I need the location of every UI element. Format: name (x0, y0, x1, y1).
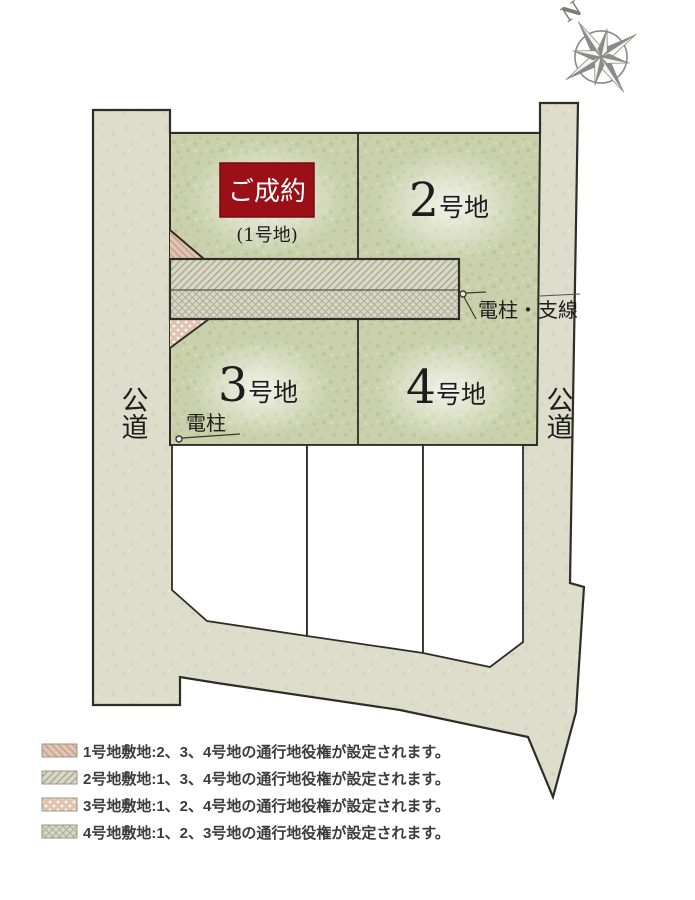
legend-label-1: 1号地敷地:2、3、4号地の通行地役権が設定されます。 (83, 743, 450, 761)
white-lot-left (172, 445, 307, 636)
legend-item-3: 3号地敷地:1、2、4号地の通行地役権が設定されます。 (42, 797, 450, 815)
easement-strip-lower (170, 290, 459, 319)
lot3-suffix: 号地 (248, 378, 298, 407)
left-road-label: 公道 (117, 386, 148, 440)
legend-item-1: 1号地敷地:2、3、4号地の通行地役権が設定されます。 (42, 743, 450, 761)
lot4-suffix: 号地 (436, 380, 486, 409)
pole-label: 電柱 (186, 411, 226, 435)
lot4-number: 4 (406, 360, 436, 415)
legend-label-4: 4号地敷地:1、2、3号地の通行地役権が設定されます。 (83, 824, 450, 842)
lot1-name: (1号地) (236, 225, 298, 246)
lot2-number: 2 (409, 173, 439, 228)
compass-ordinal-points (567, 23, 636, 92)
legend-item-2: 2号地敷地:1、3、4号地の通行地役権が設定されます。 (42, 770, 450, 788)
white-lot-right (423, 445, 523, 667)
legend-swatch-crosshatch-green (42, 825, 77, 838)
easement-strip-upper (170, 259, 459, 290)
pole-marker (176, 436, 182, 442)
legend: 1号地敷地:2、3、4号地の通行地役権が設定されます。 2号地敷地:1、3、4号… (42, 743, 450, 842)
sold-badge-label: ご成約 (228, 177, 306, 207)
compass-north-label: N (556, 0, 586, 27)
lot-plan-page: ご成約 (1号地) 2号地 3号地 4号地 公道 公道 電柱・支線 電柱 (0, 0, 695, 900)
legend-swatch-diagonal-hatch-green (42, 771, 77, 784)
right-road-label: 公道 (542, 386, 573, 440)
legend-swatch-dots-pink (42, 798, 77, 811)
pole-guywire-label: 電柱・支線 (478, 298, 578, 322)
lot-plan-drawing: ご成約 (1号地) 2号地 3号地 4号地 公道 公道 電柱・支線 電柱 (0, 0, 695, 900)
white-lot-middle (307, 445, 423, 653)
lot2-suffix: 号地 (439, 193, 489, 222)
legend-label-2: 2号地敷地:1、3、4号地の通行地役権が設定されます。 (83, 770, 450, 788)
pole-guywire-marker (460, 291, 466, 297)
lot3-number: 3 (218, 358, 248, 413)
legend-label-3: 3号地敷地:1、2、4号地の通行地役権が設定されます。 (83, 797, 450, 815)
legend-swatch-diagonal-hatch-pink (42, 744, 77, 757)
compass-rose: N (529, 0, 659, 115)
legend-item-4: 4号地敷地:1、2、3号地の通行地役権が設定されます。 (42, 824, 450, 842)
